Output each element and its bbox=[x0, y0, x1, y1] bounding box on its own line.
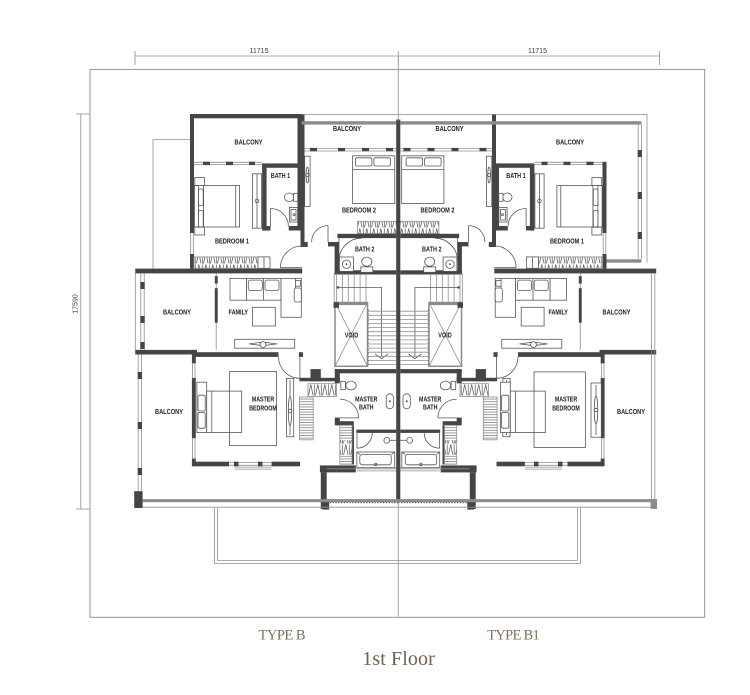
svg-text:11715: 11715 bbox=[250, 48, 269, 55]
svg-text:BALCONY: BALCONY bbox=[155, 407, 183, 416]
svg-text:TYPE B1: TYPE B1 bbox=[487, 628, 540, 644]
svg-text:BALCONY: BALCONY bbox=[163, 308, 191, 317]
svg-text:BATH 2: BATH 2 bbox=[422, 245, 442, 254]
svg-text:FAMILY: FAMILY bbox=[548, 308, 568, 317]
svg-text:VOID: VOID bbox=[345, 330, 359, 339]
svg-text:17590: 17590 bbox=[73, 294, 80, 314]
svg-text:BATH: BATH bbox=[359, 403, 374, 412]
svg-text:BEDROOM 2: BEDROOM 2 bbox=[342, 206, 376, 215]
svg-text:11715: 11715 bbox=[528, 48, 547, 55]
svg-text:BATH: BATH bbox=[423, 403, 438, 412]
svg-text:BALCONY: BALCONY bbox=[617, 407, 645, 416]
svg-text:BEDROOM 1: BEDROOM 1 bbox=[550, 237, 584, 246]
svg-text:MASTER: MASTER bbox=[252, 395, 275, 404]
svg-text:TYPE B: TYPE B bbox=[259, 628, 306, 644]
svg-text:BEDROOM: BEDROOM bbox=[552, 404, 580, 413]
svg-text:BEDROOM 1: BEDROOM 1 bbox=[215, 237, 249, 246]
svg-text:BALCONY: BALCONY bbox=[603, 308, 631, 317]
svg-text:MASTER: MASTER bbox=[555, 395, 578, 404]
svg-text:FAMILY: FAMILY bbox=[229, 308, 249, 317]
svg-text:BALCONY: BALCONY bbox=[556, 138, 584, 147]
svg-text:BALCONY: BALCONY bbox=[235, 138, 263, 147]
svg-text:BALCONY: BALCONY bbox=[436, 124, 464, 133]
svg-text:1st Floor: 1st Floor bbox=[362, 648, 435, 670]
svg-text:BEDROOM: BEDROOM bbox=[249, 404, 277, 413]
svg-text:BALCONY: BALCONY bbox=[333, 124, 361, 133]
svg-text:BATH 1: BATH 1 bbox=[271, 171, 291, 180]
svg-text:BEDROOM 2: BEDROOM 2 bbox=[421, 206, 455, 215]
svg-text:BATH 1: BATH 1 bbox=[506, 171, 526, 180]
svg-text:VOID: VOID bbox=[438, 330, 452, 339]
svg-text:BATH 2: BATH 2 bbox=[355, 245, 375, 254]
